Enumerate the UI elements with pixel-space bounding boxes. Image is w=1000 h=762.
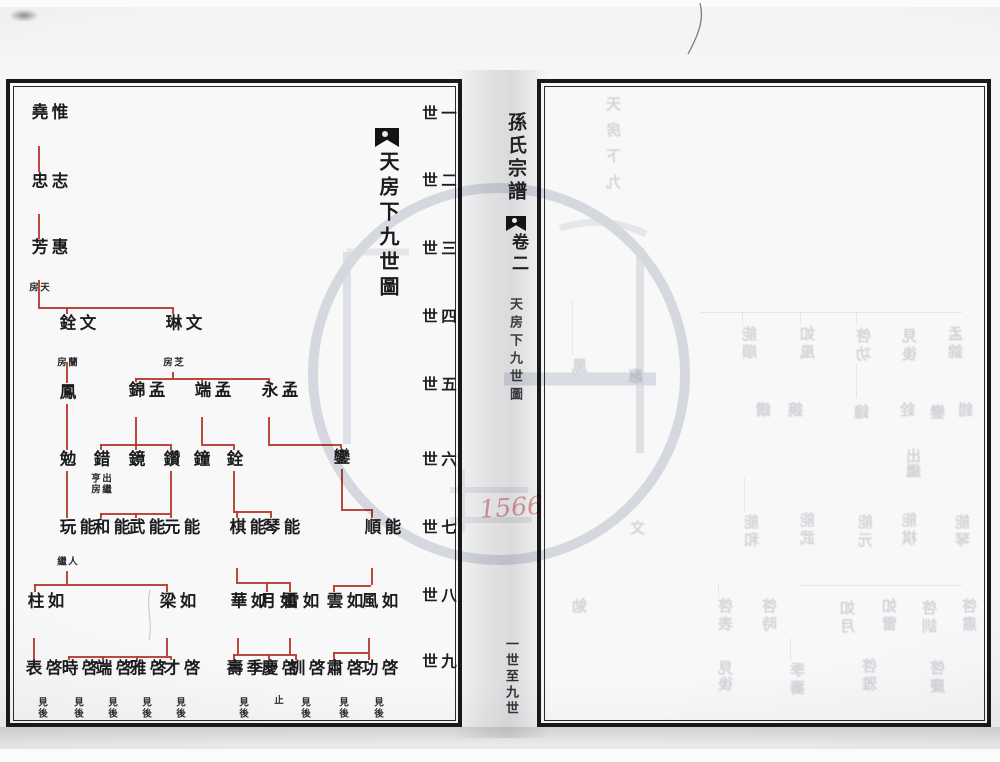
tree-node: 鏡 (125, 450, 145, 470)
ghost-char: 見 (902, 328, 917, 344)
generation-label: 五世 (420, 376, 458, 397)
ghost-line (744, 478, 745, 512)
tree-node: 鑽 (160, 450, 180, 470)
generation-label: 七世 (420, 519, 458, 540)
ghost-char: 鑽 (756, 402, 771, 418)
tree-line-vertical (66, 404, 68, 450)
tree-node: 啓訓 (285, 659, 325, 679)
ghost-line (856, 364, 857, 398)
node-annotation: 止 (272, 695, 283, 711)
tree-line-horizontal (236, 582, 289, 584)
tree-node: 文銓 (56, 314, 96, 334)
chapter-label: 天房下九世圖 (506, 297, 523, 405)
tree-node: 銓 (223, 450, 243, 470)
node-annotation: 天房 (27, 282, 49, 296)
ghost-char: 壽 (790, 680, 805, 696)
tree-line-horizontal (341, 509, 371, 511)
node-annotation: 見後 (237, 697, 248, 727)
tree-node: 勉 (56, 450, 76, 470)
ghost-char: 訓 (922, 618, 937, 634)
ghost-line (700, 312, 962, 313)
tree-node: 孟錦 (125, 381, 165, 401)
ghost-char: 啓 (718, 598, 733, 614)
node-annotation: 見後 (372, 697, 383, 727)
tree-line-vertical (237, 638, 239, 654)
ghost-char: 能 (744, 514, 759, 530)
ghost-char: 表 (718, 616, 733, 632)
node-annotation: 見後 (140, 697, 151, 727)
ghost-char: 元 (858, 532, 873, 548)
ghost-char: 慶 (930, 678, 945, 694)
ghost-char: 啓 (762, 598, 777, 614)
tree-line-vertical (341, 469, 343, 509)
ghost-char: 銓 (900, 402, 915, 418)
tree-node: 能順 (361, 518, 401, 538)
ghost-char: 惠 (628, 368, 643, 384)
tree-node: 錯 (90, 450, 110, 470)
ghost-char: 棋 (902, 530, 917, 546)
tree-line-vertical (236, 568, 238, 582)
tree-line-vertical (66, 307, 68, 314)
tree-line-horizontal (34, 584, 166, 586)
tree-node: 如柱 (24, 592, 64, 612)
tree-line-vertical (371, 509, 373, 518)
scan-smudge (9, 9, 39, 22)
tree-line-horizontal (38, 307, 172, 309)
tree-line-horizontal (333, 652, 368, 654)
tree-line-vertical (266, 582, 268, 592)
tree-node: 啓表 (22, 659, 62, 679)
tree-node: 如風 (358, 592, 398, 612)
generation-label: 四世 (420, 308, 458, 329)
ghost-line (718, 585, 719, 596)
tree-line-vertical (166, 638, 168, 656)
tree-line-vertical (33, 638, 35, 659)
generation-label: 一世 (420, 105, 458, 126)
tree-node: 啓肅 (323, 659, 363, 679)
generation-label: 六世 (420, 451, 458, 472)
ghost-char: 下 (606, 148, 621, 164)
tree-node: 惠芳 (28, 238, 68, 258)
ghost-char: 順 (742, 344, 757, 360)
book-scan: 惟堯志忠惠芳天房文銓蘭房文琳芝房鳳孟錦孟端孟永勉錯出繼亨房鏡鑽鐘銓鑾能玩人繼能和… (0, 0, 1000, 762)
ghost-char: 鑾 (930, 404, 945, 420)
tree-node: 惟堯 (28, 103, 68, 123)
tree-node: 如雷 (279, 592, 319, 612)
tree-line-vertical (34, 584, 36, 592)
ghost-char: 能 (800, 512, 815, 528)
tree-node: 文琳 (162, 314, 202, 334)
generation-label: 三世 (420, 240, 458, 261)
tree-node: 鐘 (190, 450, 210, 470)
ghost-line (742, 312, 743, 325)
node-annotation: 見後 (337, 697, 348, 727)
ghost-char: 雅 (862, 676, 877, 692)
node-annotation: 芝房 (161, 357, 183, 371)
tree-line-vertical (270, 511, 272, 518)
tree-node: 啓功 (358, 659, 398, 679)
ghost-char: 文 (630, 520, 645, 536)
tree-node: 孟永 (258, 381, 298, 401)
tree-line-horizontal (268, 444, 340, 446)
tree-line-vertical (233, 471, 235, 511)
tree-line-vertical (236, 511, 238, 518)
ghost-char: 鐘 (854, 404, 869, 420)
ghost-char: 和 (744, 532, 759, 548)
ghost-line (856, 312, 857, 325)
ghost-char: 能 (902, 512, 917, 528)
tree-node: 志忠 (28, 172, 68, 192)
tree-line-vertical (289, 582, 291, 592)
ghost-char: 能 (955, 514, 970, 530)
tree-line-vertical (201, 417, 203, 444)
tree-line-vertical (38, 214, 40, 239)
generation-label: 二世 (420, 172, 458, 193)
ghost-char: 後 (902, 346, 917, 362)
tree-line-vertical (66, 571, 68, 584)
tree-node: 如梁 (156, 592, 196, 612)
ghost-char: 肅 (962, 616, 977, 632)
tree-line-vertical (166, 584, 168, 592)
ghost-char: 能 (742, 326, 757, 342)
ghost-char: 錦 (948, 344, 963, 360)
ghost-char: 鏡 (788, 402, 803, 418)
node-annotation: 出繼亨房 (89, 473, 111, 500)
fishtail-dot (512, 218, 517, 223)
node-annotation: 見後 (36, 697, 47, 727)
book-title: 孫氏宗譜 (504, 112, 528, 204)
node-annotation: 見後 (174, 697, 185, 727)
node-annotation: 見後 (72, 697, 83, 727)
ghost-char: 啓 (962, 598, 977, 614)
range-label: 一世至九世 (502, 637, 518, 717)
node-annotation: 見後 (106, 697, 117, 727)
tree-line-vertical (289, 638, 291, 654)
page-edge-shadow (0, 727, 1000, 745)
tree-line-vertical (172, 307, 174, 314)
ghost-char: 功 (856, 346, 871, 362)
ghost-line (800, 312, 801, 325)
ghost-line (572, 300, 573, 355)
tree-line-vertical (170, 471, 172, 513)
tree-node: 啓才 (160, 659, 200, 679)
node-annotation: 見後 (299, 697, 310, 727)
ghost-char: 錯 (958, 402, 973, 418)
ghost-char: 啓 (930, 660, 945, 676)
volume-label: 卷二 (507, 233, 529, 275)
fishtail-dot (382, 131, 388, 137)
ghost-char: 能 (858, 514, 873, 530)
tree-node: 孟端 (191, 381, 231, 401)
tree-node: 能元 (160, 518, 200, 538)
tree-line-vertical (66, 471, 68, 518)
ghost-char: 啓 (922, 600, 937, 616)
ghost-char: 後 (718, 676, 733, 692)
chart-title: 天房下九世圖 (376, 151, 400, 301)
ghost-char: 時 (762, 616, 777, 632)
node-annotation: 蘭房 (55, 357, 77, 371)
generation-label: 九世 (420, 653, 458, 674)
tree-line-horizontal (233, 511, 270, 513)
ghost-char: 見 (718, 660, 733, 676)
tree-node: 季壽 (223, 659, 263, 679)
ghost-char: 孟 (948, 326, 963, 342)
ghost-char: 天 (606, 96, 621, 112)
generation-label: 八世 (420, 587, 458, 608)
ghost-line (790, 638, 791, 660)
tree-node: 鳳 (56, 383, 76, 403)
tree-line-horizontal (68, 656, 170, 658)
tree-node: 能琴 (260, 518, 300, 538)
tree-node: 鑾 (330, 448, 350, 468)
ghost-char: 如 (840, 600, 855, 616)
tree-line-vertical (333, 585, 335, 592)
tree-node: 如雲 (323, 592, 363, 612)
ghost-char: 啓 (856, 328, 871, 344)
tree-node: 能和 (90, 518, 130, 538)
centerfold-shade (453, 70, 549, 738)
tree-line-horizontal (333, 585, 371, 587)
tree-node: 能武 (125, 518, 165, 538)
ghost-char: 雷 (882, 616, 897, 632)
node-annotation: 人繼 (55, 556, 77, 570)
ghost-char: 房 (606, 122, 621, 138)
ghost-char: 武 (800, 530, 815, 546)
ghost-char: 如 (800, 326, 815, 342)
ghost-char: 如 (882, 598, 897, 614)
ghost-line (800, 585, 962, 586)
ghost-char: 月 (840, 618, 855, 634)
tree-line-vertical (268, 417, 270, 444)
tree-line-vertical (38, 146, 40, 172)
tree-line-vertical (371, 568, 373, 585)
ghost-char: 風 (800, 344, 815, 360)
tree-line-vertical (135, 417, 137, 444)
ghost-char: 琴 (955, 532, 970, 548)
ghost-char: 九 (606, 174, 621, 190)
ghost-char: 鳳 (572, 358, 587, 374)
tree-line-horizontal (233, 654, 295, 656)
ghost-char: 季 (790, 662, 805, 678)
ghost-char: 啓 (862, 658, 877, 674)
tree-line-horizontal (201, 444, 233, 446)
ghost-char: 勉 (572, 598, 587, 614)
tree-line-vertical (368, 638, 370, 652)
ghost-char: 繼 (906, 463, 921, 479)
